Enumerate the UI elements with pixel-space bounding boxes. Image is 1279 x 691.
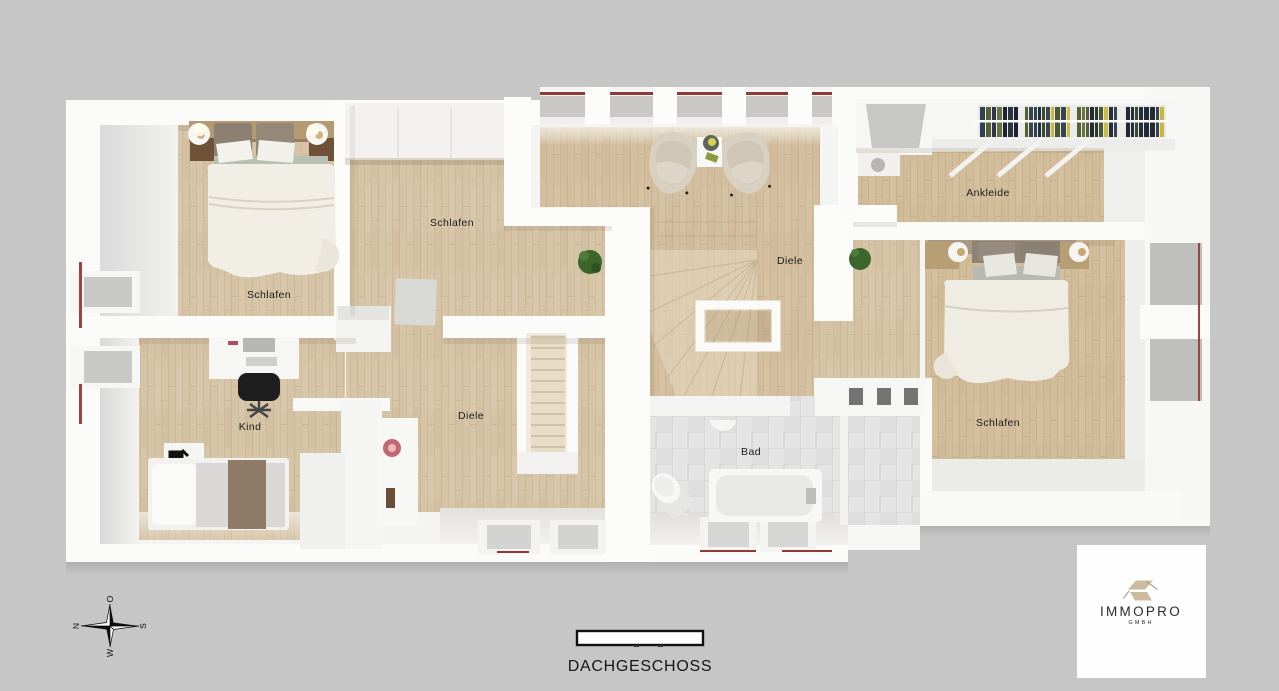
svg-text:O: O xyxy=(105,595,115,602)
svg-text:N: N xyxy=(71,623,81,629)
svg-text:GMBH: GMBH xyxy=(1128,620,1153,626)
svg-text:Ankleide: Ankleide xyxy=(966,187,1009,199)
svg-text:S: S xyxy=(138,623,148,629)
svg-text:Schlafen: Schlafen xyxy=(976,417,1020,429)
svg-text:DACHGESCHOSS: DACHGESCHOSS xyxy=(568,658,712,675)
svg-text:IMMOPRO: IMMOPRO xyxy=(1100,604,1182,619)
svg-text:Kind: Kind xyxy=(239,421,262,433)
svg-text:Schlafen: Schlafen xyxy=(247,289,291,301)
svg-text:Bad: Bad xyxy=(741,446,761,458)
svg-text:W: W xyxy=(105,649,115,657)
svg-text:Diele: Diele xyxy=(458,410,484,422)
svg-text:Diele: Diele xyxy=(777,255,803,267)
svg-text:Schlafen: Schlafen xyxy=(430,217,474,229)
